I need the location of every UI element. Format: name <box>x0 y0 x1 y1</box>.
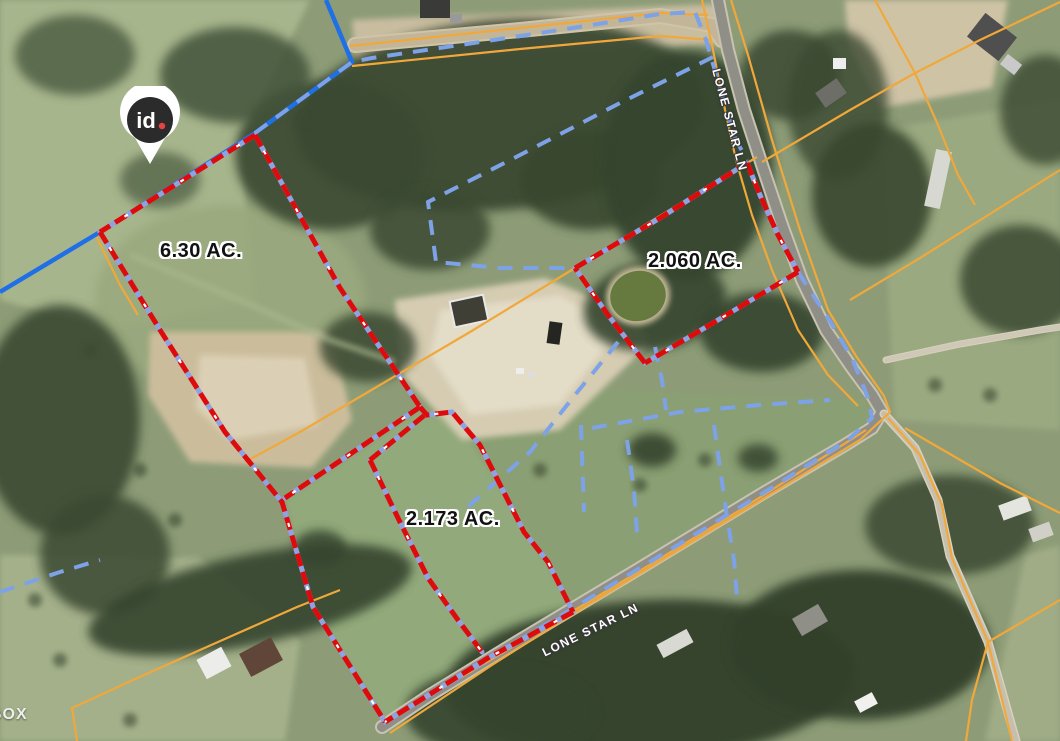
building <box>528 372 534 377</box>
building <box>450 14 462 23</box>
pin-logo-text: id <box>136 108 156 133</box>
building <box>450 295 489 328</box>
satellite-map-canvas[interactable]: id 6.30 AC. 2.060 AC. 2.173 AC. LONE STA… <box>0 0 1060 741</box>
watermark-text: BOX <box>0 706 28 724</box>
building <box>420 0 450 18</box>
location-pin[interactable]: id <box>115 86 185 166</box>
building <box>516 368 524 374</box>
acreage-label-2-173: 2.173 AC. <box>406 508 500 531</box>
pin-icon: id <box>115 86 185 166</box>
acreage-label-6-30: 6.30 AC. <box>160 240 242 263</box>
building <box>833 58 846 69</box>
pin-logo-dot <box>159 123 165 129</box>
acreage-label-2-060: 2.060 AC. <box>648 250 742 273</box>
